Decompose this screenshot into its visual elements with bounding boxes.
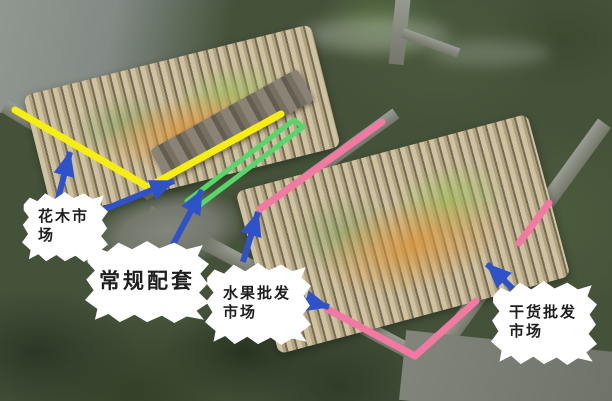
callout-regular-facilities: 常规配套 [85,241,209,323]
callout-dried-goods-wholesale-market: 干货批发市场 [491,281,597,365]
callout-label: 常规配套 [99,269,195,295]
callout-label: 水果批发市场 [223,285,293,323]
aerial-masterplan-image: 花木市场 常规配套 水果批发市场 干货批发市场 [0,0,612,401]
callout-fruit-wholesale-market: 水果批发市场 [205,263,311,345]
callout-label: 花木市场 [38,208,92,246]
callout-label: 干货批发市场 [509,304,579,342]
